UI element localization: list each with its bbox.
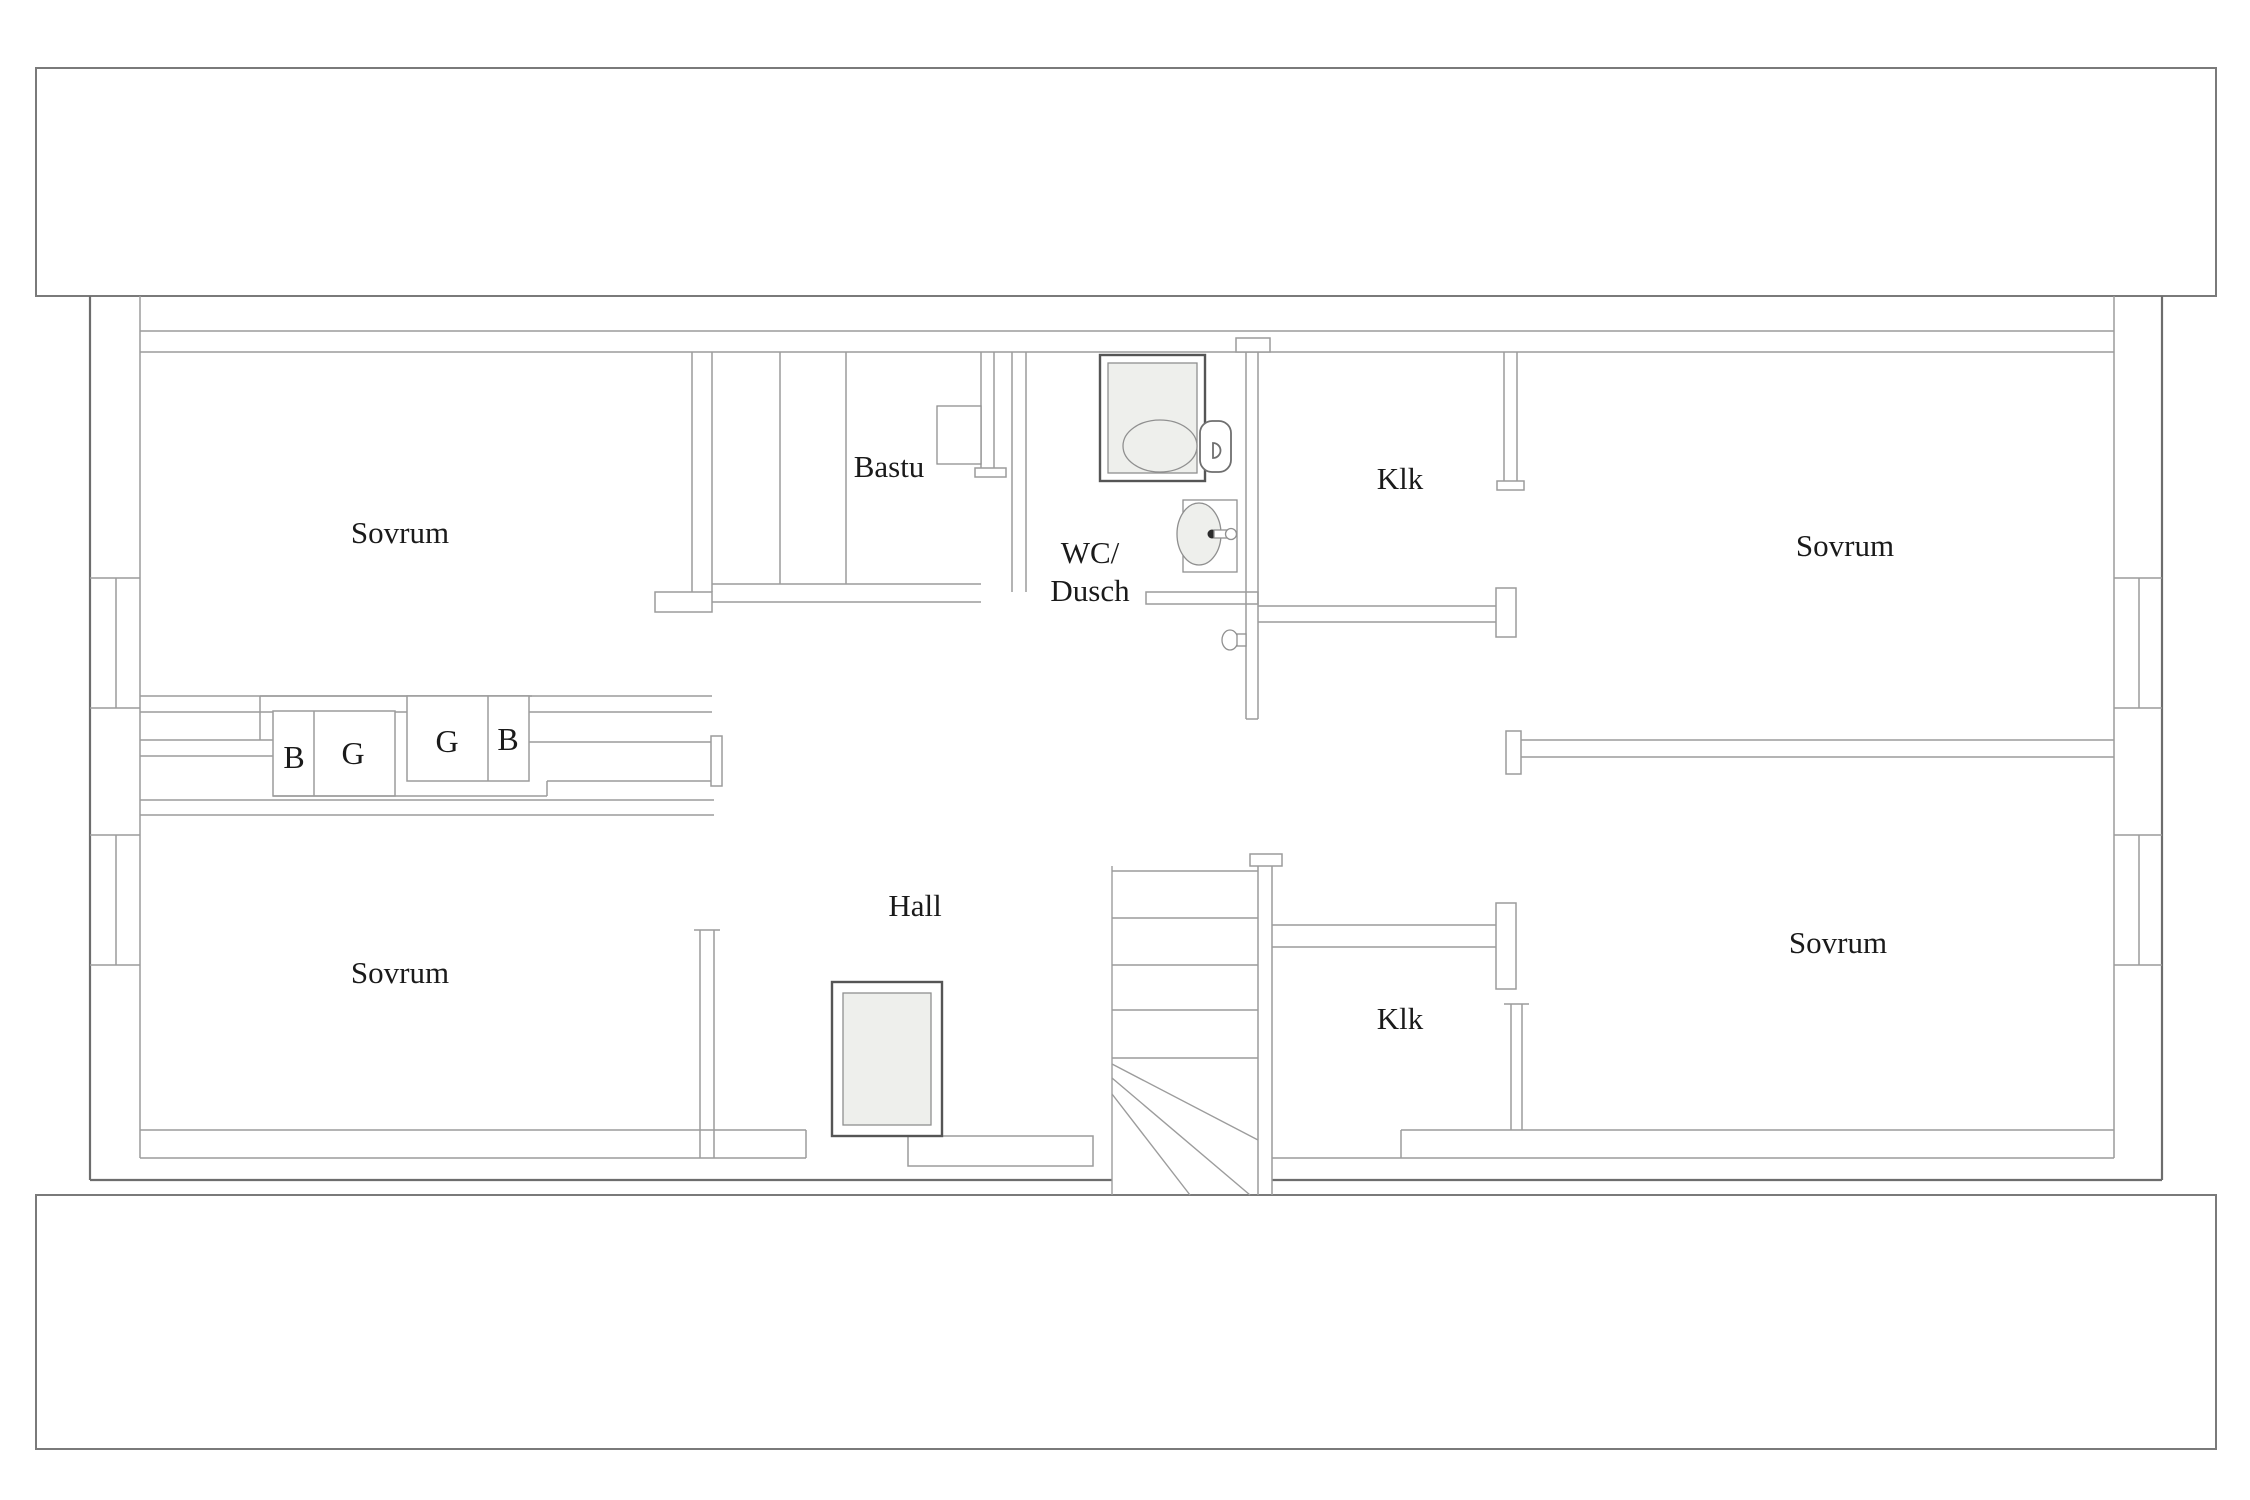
window-niche [90, 835, 140, 965]
floor-plan-page: Sovrum Bastu WC/ Dusch Klk Sovrum Hall S… [0, 0, 2250, 1500]
window-niche [90, 578, 140, 708]
closet-bank [140, 696, 722, 796]
label-sovrum-bottom-right: Sovrum [1789, 925, 1887, 960]
hall-bottom-wall-slab [908, 1136, 1093, 1166]
label-wc-line2: Dusch [1050, 573, 1130, 608]
staircase [1112, 854, 1282, 1195]
label-closet-g2: G [435, 723, 458, 759]
window-niche [2114, 578, 2162, 708]
label-klk-bottom: Klk [1377, 1001, 1424, 1036]
label-closet-b2: B [497, 721, 518, 757]
label-hall: Hall [888, 888, 941, 923]
skylight [832, 982, 942, 1136]
window-niche [2114, 835, 2162, 965]
winder-step [1112, 1094, 1190, 1195]
roof-overhang-bottom [36, 1195, 2216, 1449]
right-bedrooms-divider [1506, 731, 2114, 774]
label-bastu: Bastu [854, 449, 925, 484]
sink [1177, 500, 1237, 572]
door-handle [1222, 630, 1246, 650]
flush-button [1213, 443, 1221, 458]
label-wc-line1: WC/ [1061, 535, 1120, 570]
winder-step [1112, 1078, 1250, 1195]
label-sovrum-bottom-left: Sovrum [351, 955, 449, 990]
label-closet-g1: G [341, 735, 364, 771]
room-wc-dusch [1012, 352, 1258, 604]
roof-overhang-top [36, 68, 2216, 296]
winder-step [1112, 1064, 1258, 1140]
room-klk-bottom-walls [1272, 903, 1516, 989]
toilet [1123, 420, 1231, 472]
sauna-heater [937, 406, 981, 464]
label-sovrum-top-right: Sovrum [1796, 528, 1894, 563]
label-klk-top: Klk [1377, 461, 1424, 496]
label-closet-b1: B [283, 739, 304, 775]
room-sovrum-bottom-right-walls [1504, 1004, 1529, 1130]
floor-plan-drawing: Sovrum Bastu WC/ Dusch Klk Sovrum Hall S… [0, 0, 2250, 1500]
label-sovrum-top-left: Sovrum [351, 515, 449, 550]
window-niches [90, 578, 2162, 965]
